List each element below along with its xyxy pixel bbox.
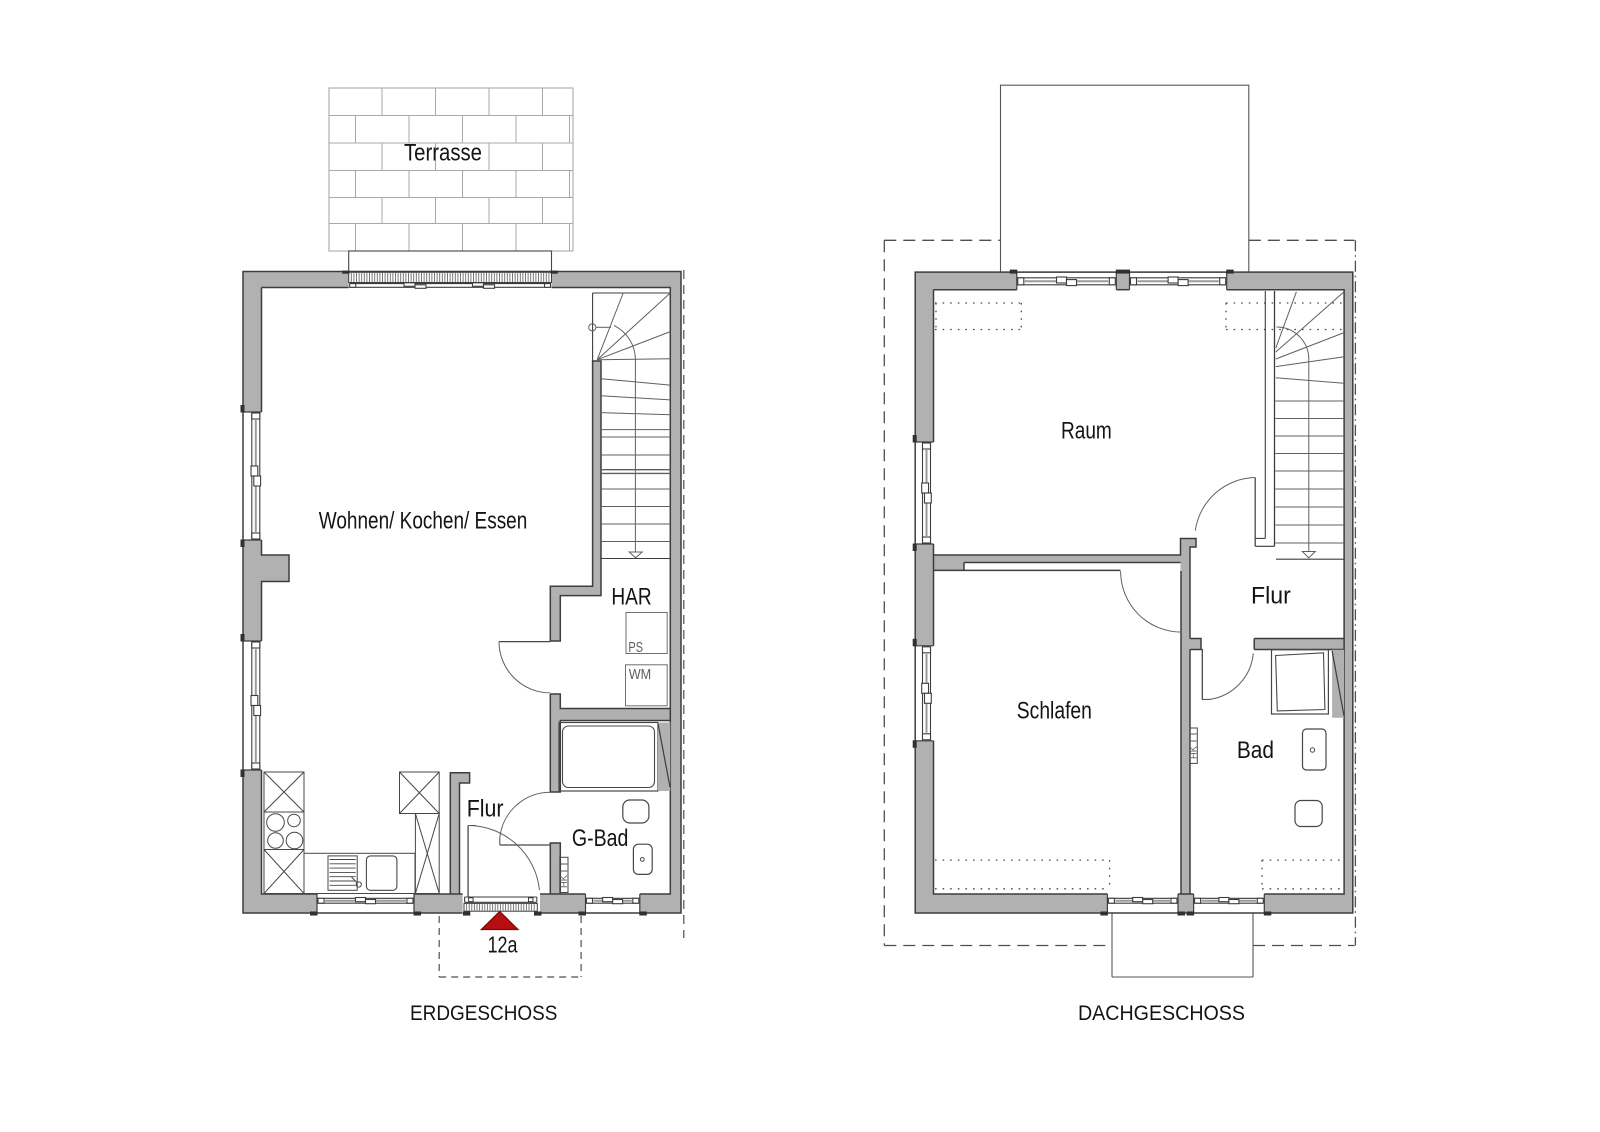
svg-text:HAR: HAR — [611, 583, 651, 610]
svg-text:12a: 12a — [488, 932, 519, 958]
svg-text:WM: WM — [629, 667, 652, 683]
svg-text:Flur: Flur — [467, 795, 504, 822]
svg-text:HK: HK — [1188, 746, 1198, 759]
svg-text:Flur: Flur — [1251, 583, 1291, 610]
svg-text:PS: PS — [628, 640, 643, 656]
svg-text:Raum: Raum — [1061, 418, 1112, 445]
svg-text:Schlafen: Schlafen — [1017, 698, 1092, 725]
svg-text:Terrasse: Terrasse — [404, 140, 482, 167]
svg-text:Bad: Bad — [1237, 737, 1274, 764]
svg-text:ERDGESCHOSS: ERDGESCHOSS — [410, 1002, 557, 1025]
svg-text:G-Bad: G-Bad — [572, 825, 629, 852]
svg-text:Wohnen/ Kochen/ Essen: Wohnen/ Kochen/ Essen — [319, 508, 528, 535]
svg-text:HK: HK — [559, 875, 569, 888]
svg-text:DACHGESCHOSS: DACHGESCHOSS — [1078, 1002, 1245, 1025]
